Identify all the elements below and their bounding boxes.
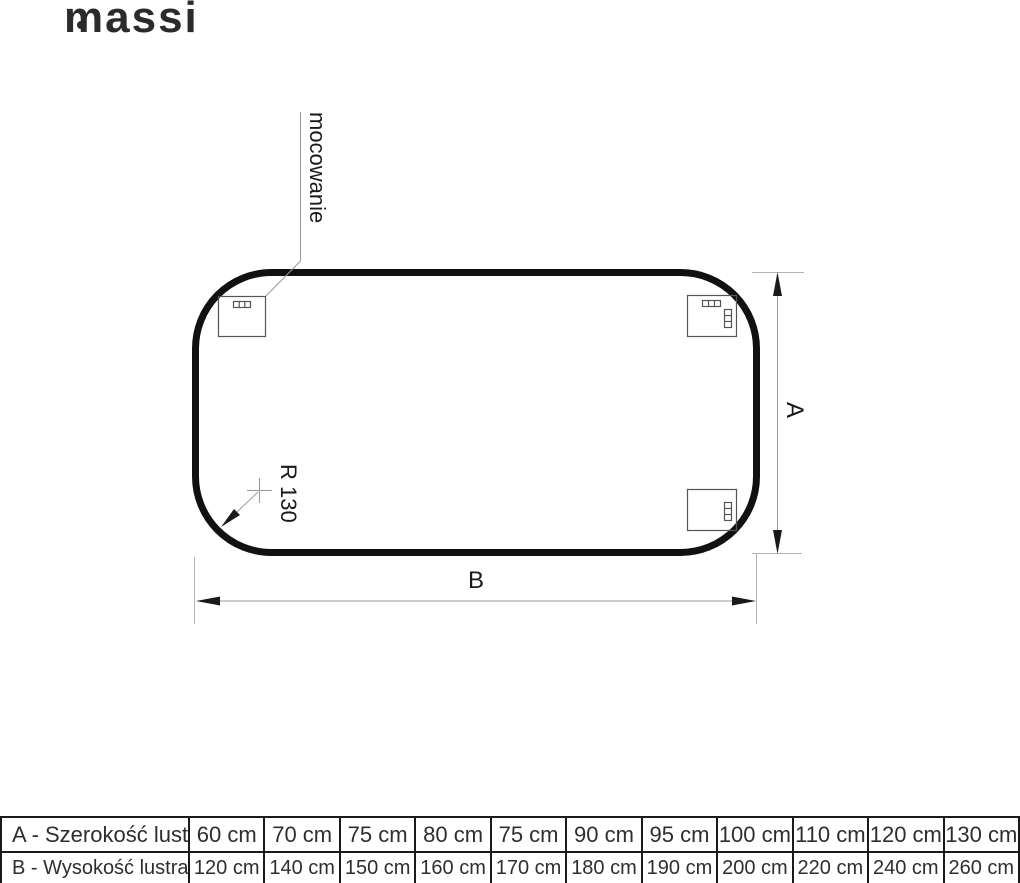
cell-a-11: 130 cm — [944, 817, 1019, 852]
size-table: A - Szerokość lustra 60 cm 70 cm 75 cm 8… — [0, 816, 1020, 883]
mounting-label: mocowanie — [306, 112, 329, 223]
cell-a-1: 60 cm — [189, 817, 264, 852]
cell-b-10: 240 cm — [868, 852, 943, 883]
radius-label: R 130 — [277, 464, 300, 523]
table-row-height: B - Wysokość lustra 120 cm 140 cm 150 cm… — [1, 852, 1019, 883]
cell-b-3: 150 cm — [340, 852, 415, 883]
page: massi — [0, 0, 1020, 883]
table-row-width: A - Szerokość lustra 60 cm 70 cm 75 cm 8… — [1, 817, 1019, 852]
cell-a-7: 95 cm — [642, 817, 717, 852]
cell-b-5: 170 cm — [491, 852, 566, 883]
cell-b-4: 160 cm — [415, 852, 490, 883]
cell-b-9: 220 cm — [793, 852, 868, 883]
dimension-a-arrow-up-icon — [773, 272, 782, 296]
cell-a-6: 90 cm — [566, 817, 641, 852]
cell-b-7: 190 cm — [642, 852, 717, 883]
dimension-b-label: B — [468, 569, 484, 593]
cell-b-2: 140 cm — [264, 852, 339, 883]
cell-a-4: 80 cm — [415, 817, 490, 852]
dimension-a-label: A — [782, 402, 807, 418]
cell-a-2: 70 cm — [264, 817, 339, 852]
mounting-leader-line — [266, 112, 301, 296]
dimension-b-arrow-left-icon — [196, 597, 220, 606]
row-a-label: A - Szerokość lustra — [1, 817, 189, 852]
cell-a-5: 75 cm — [491, 817, 566, 852]
cell-b-1: 120 cm — [189, 852, 264, 883]
cell-a-10: 120 cm — [868, 817, 943, 852]
mirror-technical-drawing — [0, 0, 1020, 780]
cell-b-11: 260 cm — [944, 852, 1019, 883]
row-b-label: B - Wysokość lustra — [1, 852, 189, 883]
dimension-a-arrow-down-icon — [773, 530, 782, 554]
cell-b-8: 200 cm — [717, 852, 792, 883]
dimension-b-arrow-right-icon — [732, 597, 756, 606]
cell-b-6: 180 cm — [566, 852, 641, 883]
cell-a-3: 75 cm — [340, 817, 415, 852]
cell-a-9: 110 cm — [793, 817, 868, 852]
cell-a-8: 100 cm — [717, 817, 792, 852]
